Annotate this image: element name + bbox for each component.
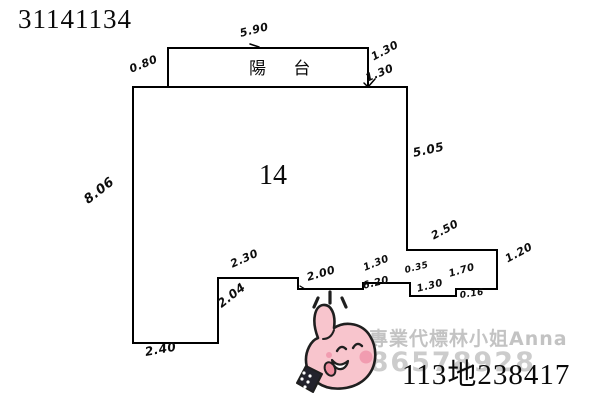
thumbs-up-sticker xyxy=(296,286,396,401)
unit-number: 14 xyxy=(259,160,287,192)
floor-plan-document: 31141134 14 陽 台 5.90 0.80 1.30 1.30 5.05… xyxy=(0,0,603,401)
emphasis-lines-icon xyxy=(314,292,346,307)
balcony-label: 陽 台 xyxy=(249,54,310,79)
document-number: 31141134 xyxy=(18,4,132,35)
tick-mark xyxy=(250,44,259,47)
case-number: 113地238417 xyxy=(402,351,570,393)
